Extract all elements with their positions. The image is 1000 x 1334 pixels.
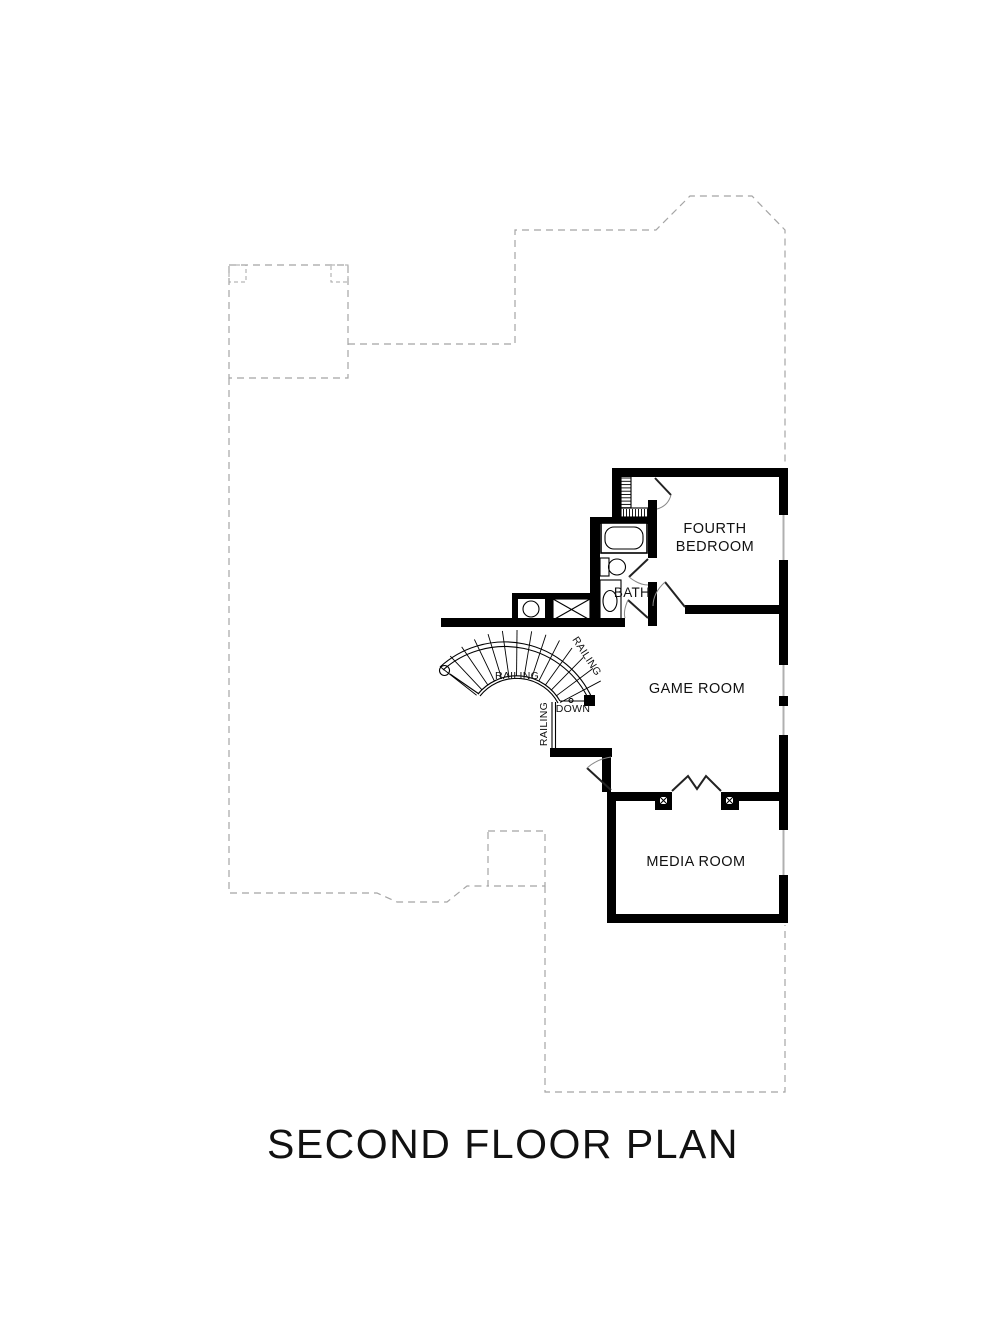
closet-circle-symbol: [523, 601, 539, 617]
bedroom-bottom-wall: [685, 605, 788, 614]
railing-label-lower: RAILING: [538, 702, 550, 746]
utility-closets: [523, 599, 590, 620]
stair-tread: [551, 657, 583, 690]
chase-left-wall: [612, 468, 621, 517]
dashed-left-porch-rect: [229, 265, 348, 378]
bedroom-top-door-arc: [657, 495, 671, 509]
bath-lower-door-leaf: [628, 600, 648, 618]
game-room-label: GAME ROOM: [649, 681, 745, 697]
stair-tread: [440, 667, 476, 695]
dashed-left-outline: [229, 378, 488, 902]
stair-tread: [545, 648, 572, 685]
toilet-tank: [600, 558, 609, 576]
floor-plan-page: FOURTH BEDROOM BATH GAME ROOM MEDIA ROOM…: [0, 0, 1000, 1334]
down-label: DOWN: [556, 703, 590, 715]
dashed-post-right: [331, 265, 348, 282]
media-room-top-wall-right: [739, 792, 788, 801]
chase-hatch-rungs: [621, 478, 648, 517]
plan-title: SECOND FLOOR PLAN: [267, 1121, 739, 1167]
right-wall-mullion: [779, 696, 788, 706]
dashed-post-left: [229, 265, 246, 282]
chase-right-stub: [648, 500, 657, 517]
bath-upper-door-leaf: [629, 559, 648, 577]
toilet-bowl: [609, 559, 626, 575]
media-room-left-wall: [607, 792, 616, 923]
fourth-bedroom-label-line1: FOURTH: [683, 521, 746, 537]
media-room-double-doors: [672, 776, 721, 791]
bath-upper-door-arc: [629, 577, 648, 585]
dashed-top-outline: [348, 196, 785, 466]
dashed-small-box: [488, 831, 545, 886]
media-room-label: MEDIA ROOM: [646, 854, 745, 870]
bath-label: BATH: [614, 585, 650, 600]
lower-floor-dashed-outline: [229, 196, 785, 1092]
fourth-bedroom-label-line2: BEDROOM: [676, 539, 754, 555]
chase-hatch-horizontal: [621, 508, 648, 517]
labels: FOURTH BEDROOM BATH GAME ROOM MEDIA ROOM…: [267, 521, 754, 1167]
bath-lower-door-arc: [624, 600, 628, 618]
media-room-top-wall-left: [607, 792, 655, 801]
bath-fixtures: [600, 523, 647, 622]
bedroom-entry-door-leaf: [665, 582, 685, 607]
railing-volute-link: [450, 674, 479, 694]
media-room-bottom-wall: [607, 914, 788, 923]
attic-chase-hatch: [621, 475, 648, 517]
floor-plan-canvas: FOURTH BEDROOM BATH GAME ROOM MEDIA ROOM…: [0, 0, 1000, 1334]
closet-top-wall: [512, 593, 597, 599]
bedroom-top-wall: [612, 468, 788, 477]
hall-wall: [441, 618, 625, 627]
bedroom-top-door-leaf: [655, 478, 671, 495]
right-wall-seg-1: [779, 468, 788, 515]
closet-right-wall: [590, 593, 600, 618]
railing-label-inner: RAILING: [495, 670, 539, 682]
right-wall-seg-3: [779, 735, 788, 830]
stair-tread: [462, 647, 488, 685]
